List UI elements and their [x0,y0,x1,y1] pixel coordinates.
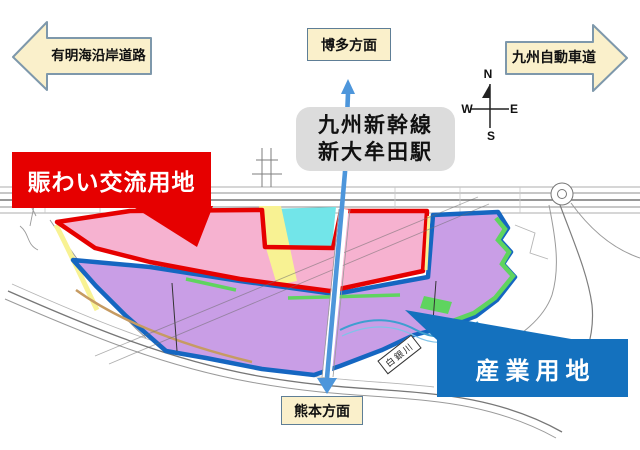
west-direction-arrow: 有明海沿岸道路 [10,18,155,94]
site-map: 有明海沿岸道路 九州自動車道 博多方面 熊本方面 九州新幹線 新大牟田駅 賑わい… [0,0,640,450]
compass-s: S [487,129,495,143]
compass-w: W [461,102,473,116]
south-direction-box: 熊本方面 [281,396,363,425]
compass-icon: N W E S [456,60,522,146]
industrial-zone-callout: 産業用地 [437,339,628,397]
station-line2: 新大牟田駅 [318,139,433,166]
west-arrow-label: 有明海沿岸道路 [44,18,153,90]
station-callout: 九州新幹線 新大牟田駅 [296,107,455,171]
east-direction-arrow: 九州自動車道 [504,22,630,92]
north-direction-box: 博多方面 [307,28,391,61]
compass-n: N [484,67,493,81]
shinkansen-arrow-up-icon [341,79,355,94]
station-line1: 九州新幹線 [318,112,433,139]
compass-rose: N W E S [456,60,522,146]
exchange-zone-callout: 賑わい交流用地 [12,152,211,208]
compass-e: E [510,102,518,116]
